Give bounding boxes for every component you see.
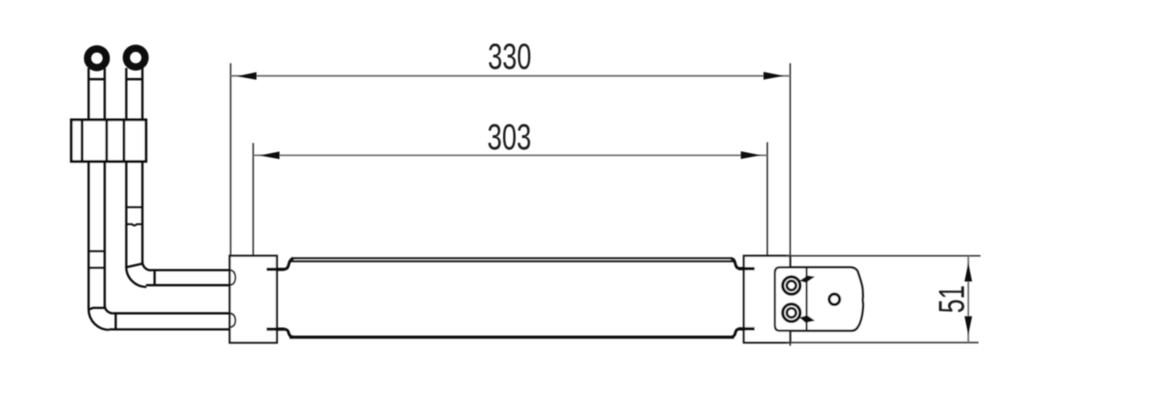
- svg-text:51: 51: [931, 285, 972, 313]
- svg-text:330: 330: [488, 36, 532, 77]
- svg-text:303: 303: [487, 117, 531, 158]
